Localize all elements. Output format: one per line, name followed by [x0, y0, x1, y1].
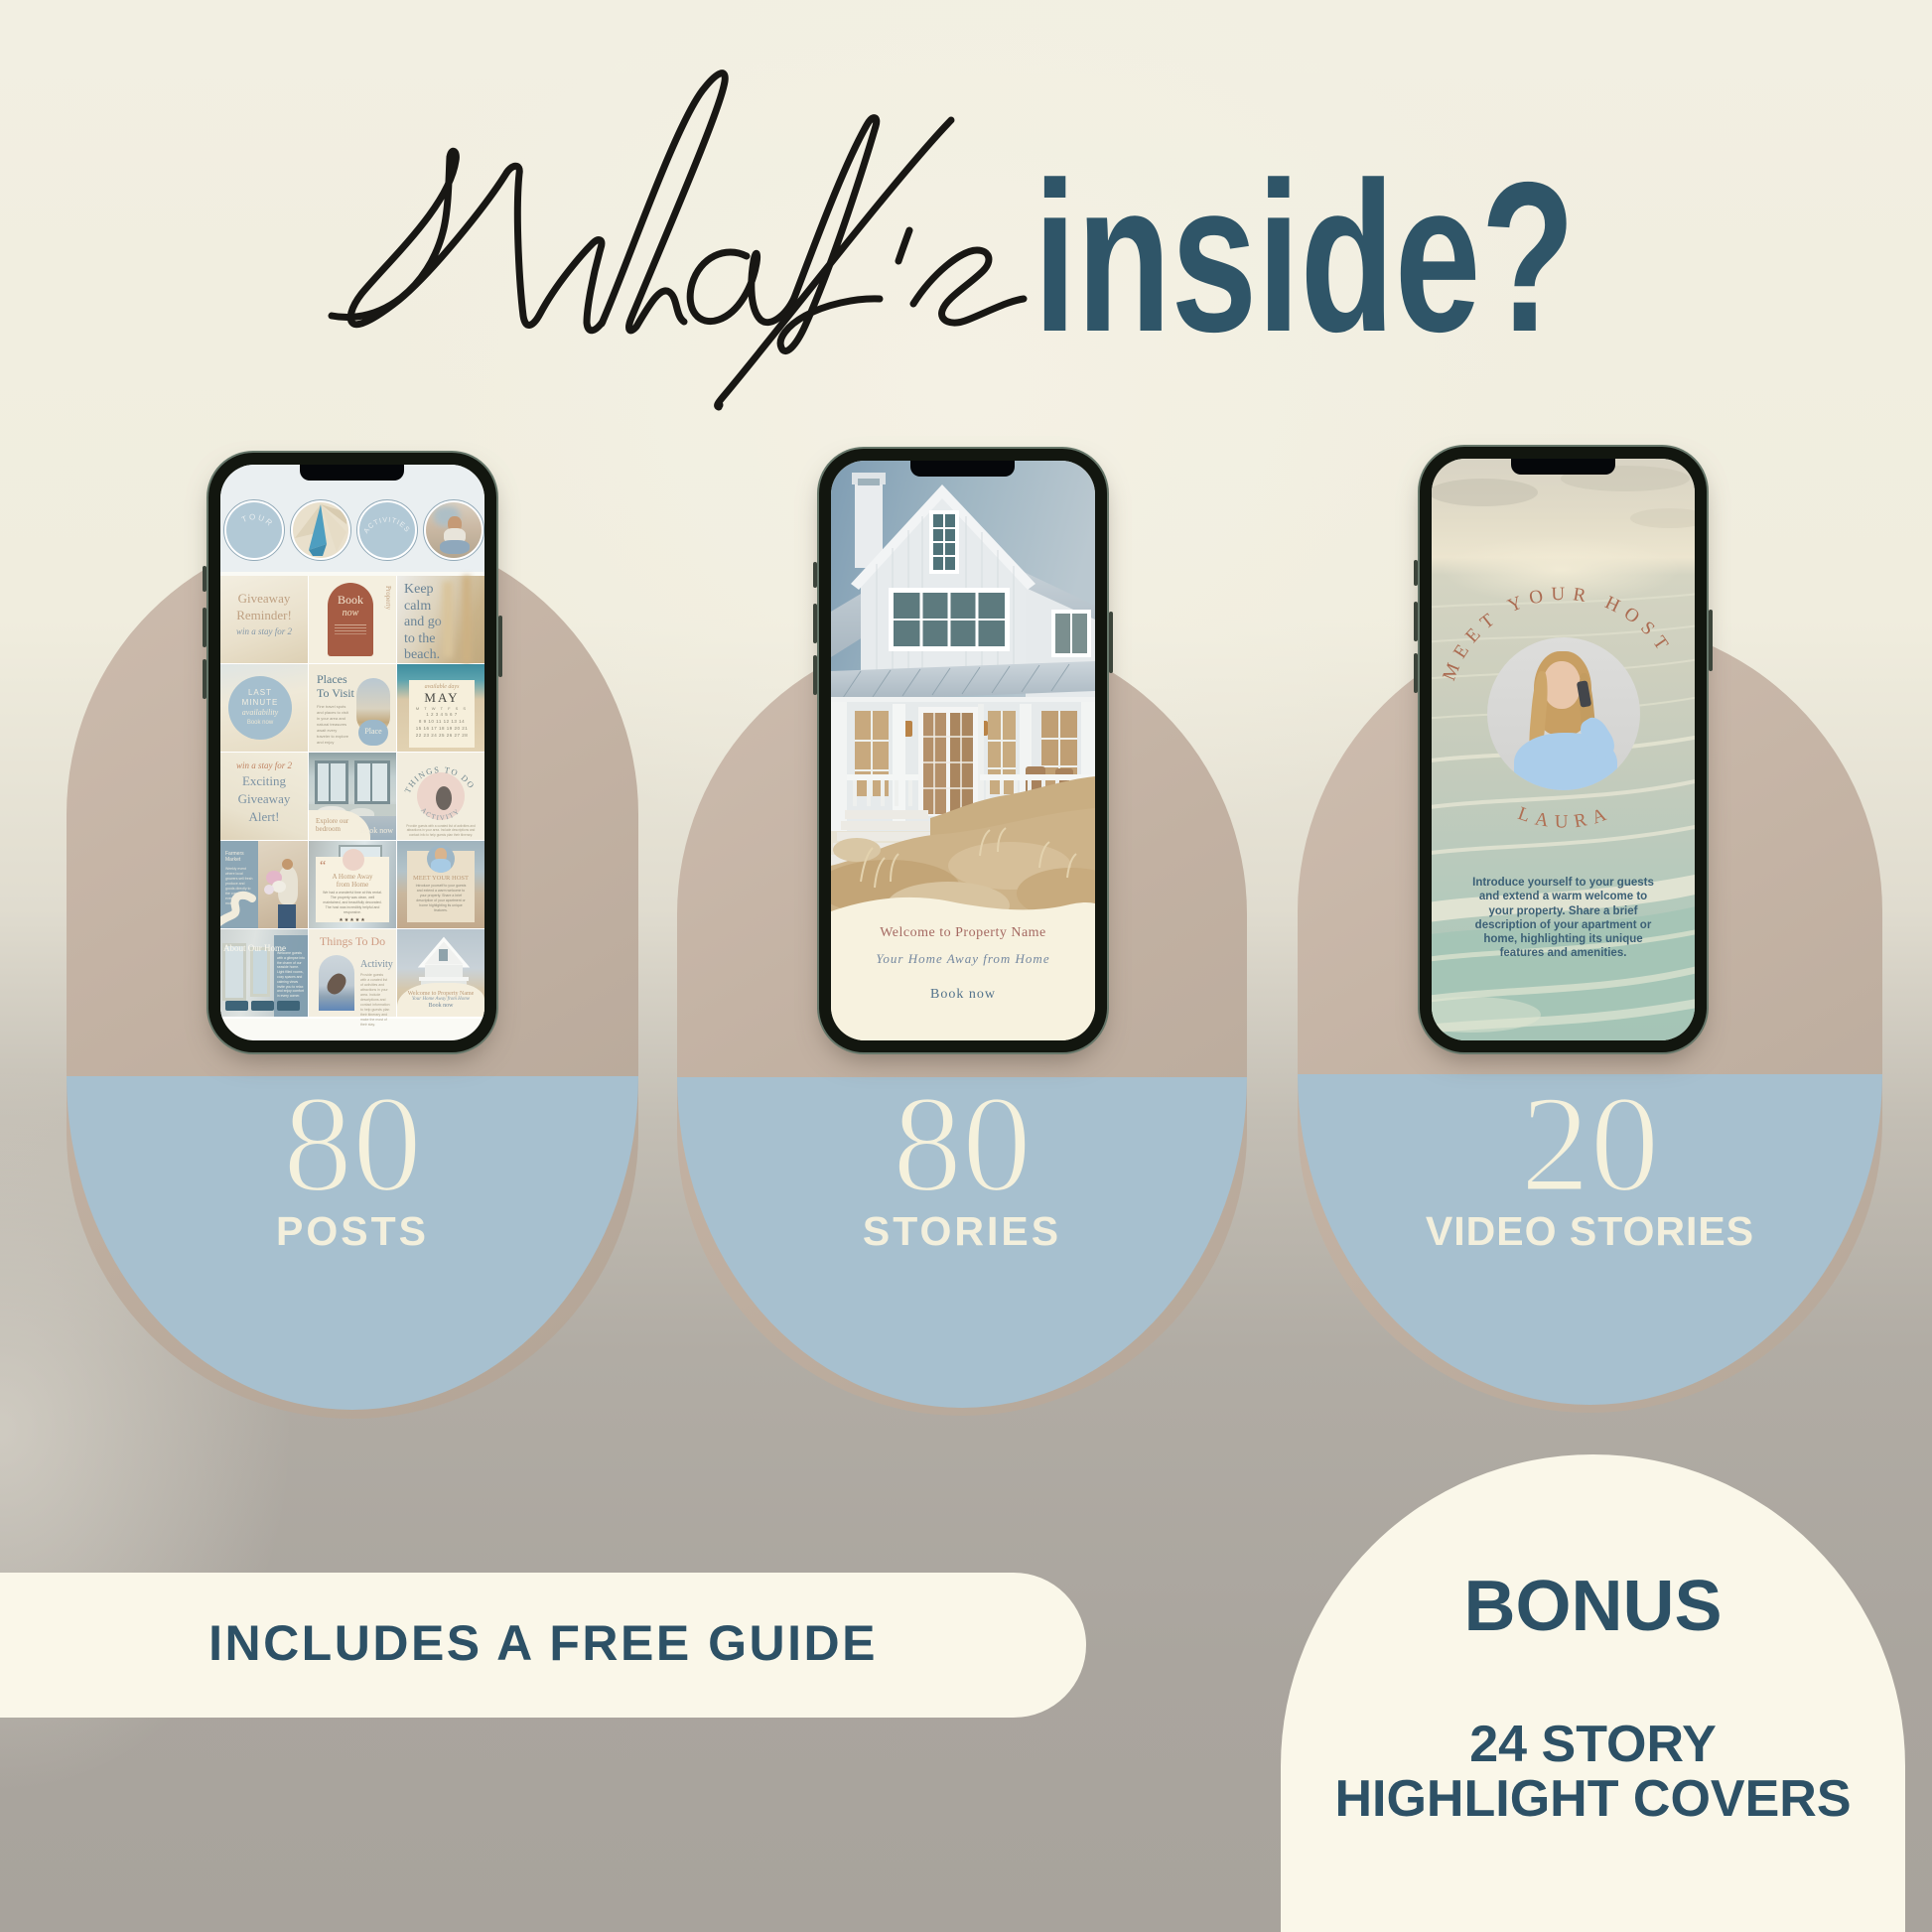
svg-text:LAURA: LAURA — [1515, 802, 1615, 833]
svg-text:TOUR: TOUR — [240, 512, 275, 528]
svg-text:ACTIVITIES: ACTIVITIES — [363, 517, 411, 535]
